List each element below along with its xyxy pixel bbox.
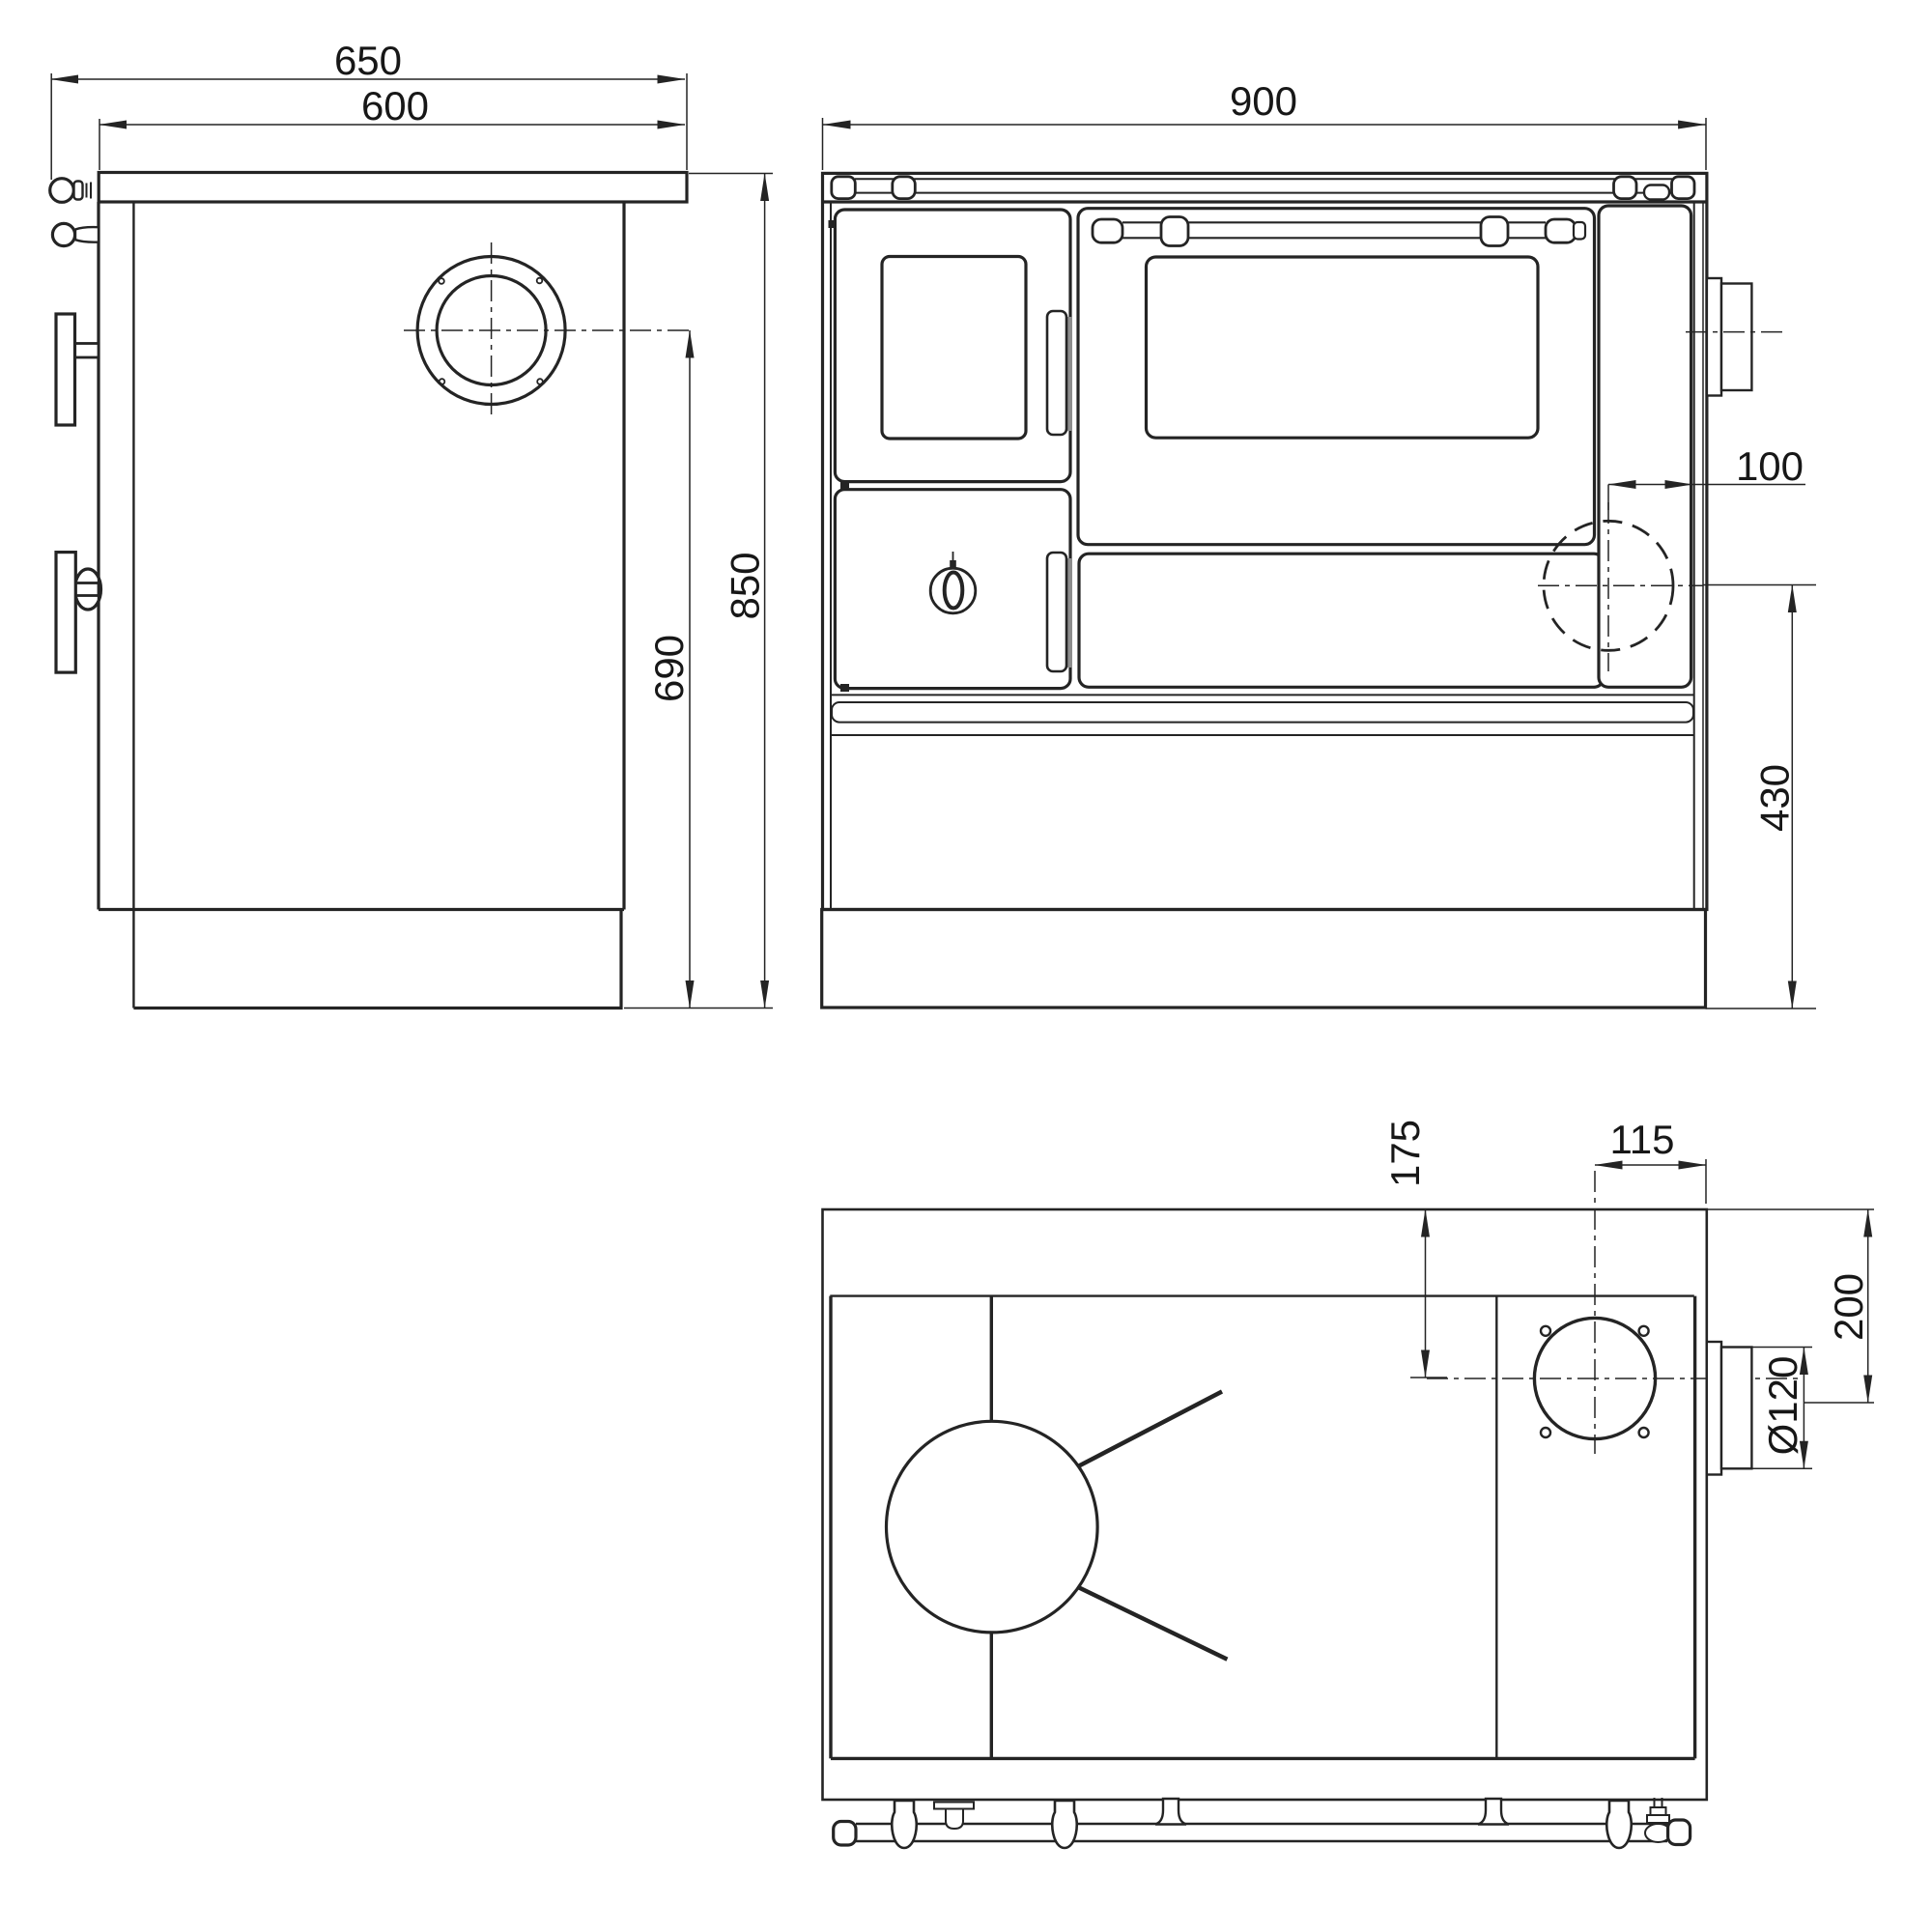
svg-text:600: 600 (361, 83, 429, 128)
svg-text:175: 175 (1382, 1120, 1428, 1187)
svg-text:200: 200 (1826, 1273, 1871, 1341)
svg-text:100: 100 (1736, 443, 1804, 489)
svg-text:900: 900 (1230, 78, 1297, 124)
svg-text:Ø120: Ø120 (1760, 1356, 1805, 1456)
svg-text:650: 650 (334, 38, 402, 83)
svg-text:850: 850 (723, 552, 768, 619)
svg-text:690: 690 (646, 635, 692, 702)
svg-text:430: 430 (1752, 764, 1798, 832)
svg-text:115: 115 (1610, 1117, 1675, 1162)
